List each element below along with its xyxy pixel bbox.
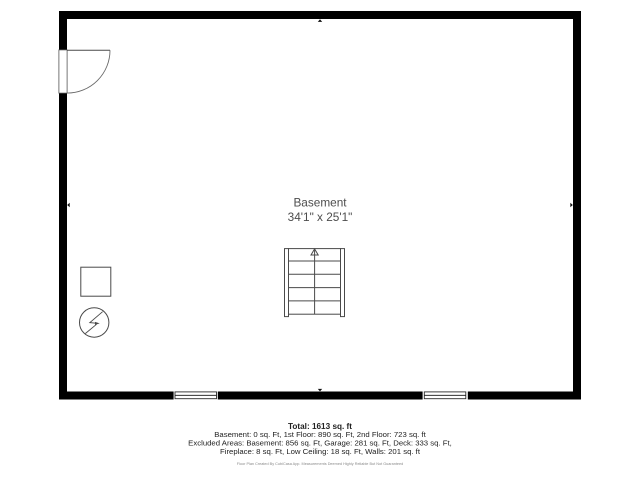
- svg-text:Basement: Basement: [293, 196, 347, 210]
- svg-text:Fireplace: 8 sq. Ft, Low Ceili: Fireplace: 8 sq. Ft, Low Ceiling: 18 sq.…: [220, 447, 421, 456]
- svg-text:Floor Plan Created By CubiCasa: Floor Plan Created By CubiCasa App. Meas…: [237, 462, 404, 466]
- svg-text:34'1" x 25'1": 34'1" x 25'1": [288, 210, 353, 224]
